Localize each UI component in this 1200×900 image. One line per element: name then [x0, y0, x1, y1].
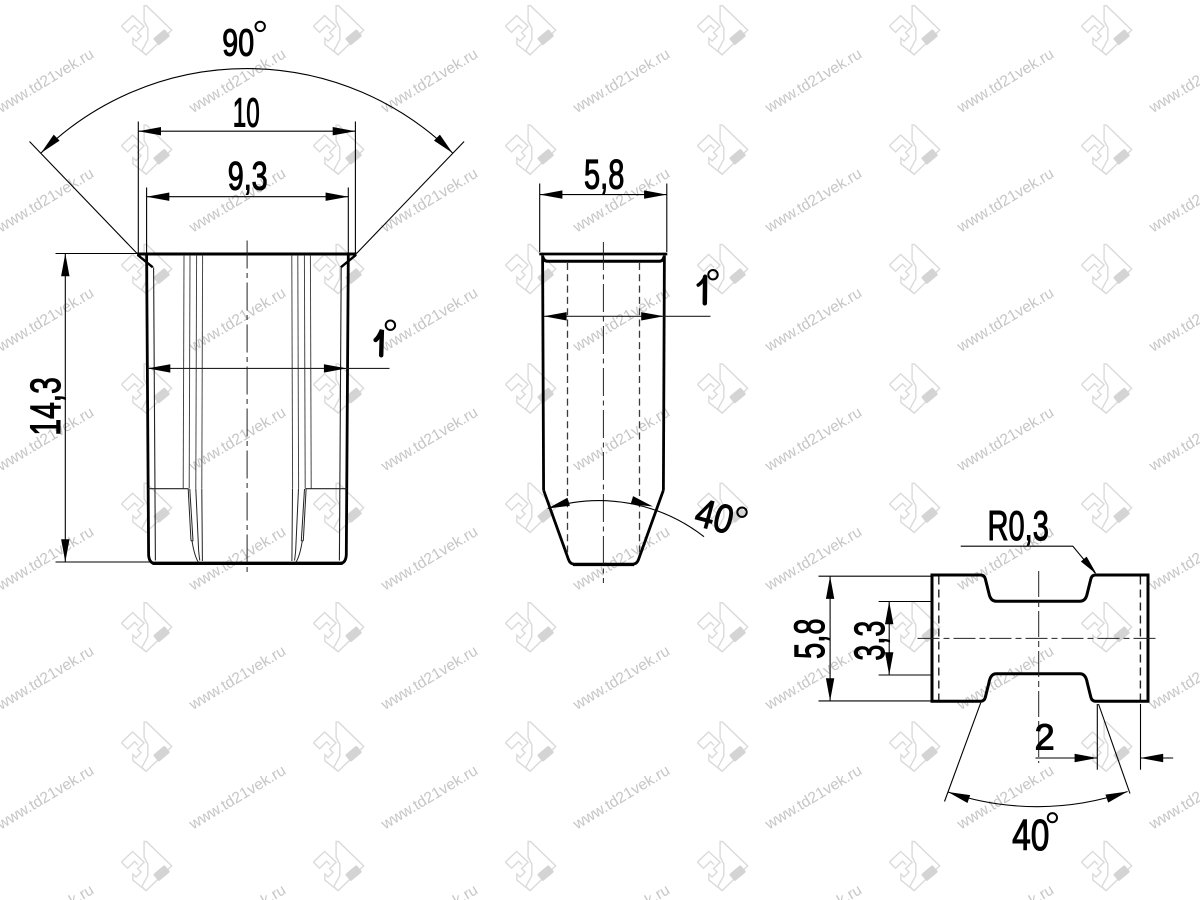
svg-text:10: 10: [233, 90, 260, 136]
svg-text:9,3: 9,3: [228, 155, 268, 199]
svg-text:40: 40: [1012, 811, 1049, 860]
svg-text:R0,3: R0,3: [988, 502, 1049, 549]
svg-text:5,8: 5,8: [584, 151, 624, 198]
svg-text:90: 90: [222, 22, 254, 64]
svg-text:5,8: 5,8: [786, 618, 834, 659]
svg-text:2: 2: [1035, 717, 1055, 758]
svg-text:3,3: 3,3: [847, 621, 894, 661]
svg-text:14,3: 14,3: [23, 377, 70, 435]
